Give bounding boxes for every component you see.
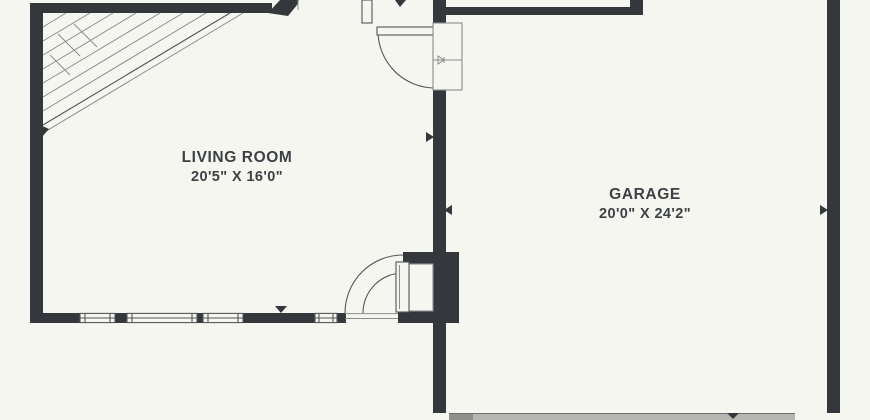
window [203, 313, 243, 322]
bottom-wall-segment [115, 313, 127, 323]
top-doorway [298, 0, 435, 88]
measurement-arrow-icon [820, 205, 828, 215]
garage-label: GARAGE [609, 186, 681, 203]
window [80, 313, 115, 322]
left-wall [30, 3, 43, 323]
bottom-wall-segment [197, 313, 203, 323]
door-swing-arrow-icon [395, 0, 406, 7]
measurement-arrow-icon [426, 132, 434, 142]
angled-wall-stub [268, 0, 299, 16]
staircase [40, 13, 243, 138]
window [127, 313, 197, 322]
living-room-label: LIVING ROOM [182, 149, 293, 166]
bottom-wall-segment [30, 313, 80, 323]
living-room-dimensions: 20'5" X 16'0" [191, 169, 283, 185]
measurement-arrow-icon [275, 306, 287, 313]
door-frame-wall [446, 252, 459, 323]
window [315, 313, 337, 322]
top-wall [30, 3, 272, 13]
door-swing-arc [345, 255, 403, 313]
floor-plan-canvas: LIVING ROOM 20'5" X 16'0" GARAGE 20'0" X… [0, 0, 870, 420]
door-leaf [396, 262, 409, 312]
door-leaf [377, 27, 435, 35]
floor-plan: LIVING ROOM 20'5" X 16'0" GARAGE 20'0" X… [0, 0, 870, 420]
water-heater-fixture [433, 23, 462, 90]
garage-top-wall [446, 7, 643, 15]
door-frame-inner [409, 264, 433, 311]
door-swing-arc [378, 31, 435, 88]
garage-wall-stub [630, 0, 643, 8]
garage-dimensions: 20'0" X 24'2" [599, 206, 691, 222]
bottom-wall-segment [243, 313, 315, 323]
garage-right-wall [827, 0, 840, 413]
garage-door [449, 413, 795, 420]
door-leaf [362, 0, 372, 23]
stair-direction-arrow-icon [40, 125, 49, 138]
bottom-wall-segment [337, 313, 346, 323]
